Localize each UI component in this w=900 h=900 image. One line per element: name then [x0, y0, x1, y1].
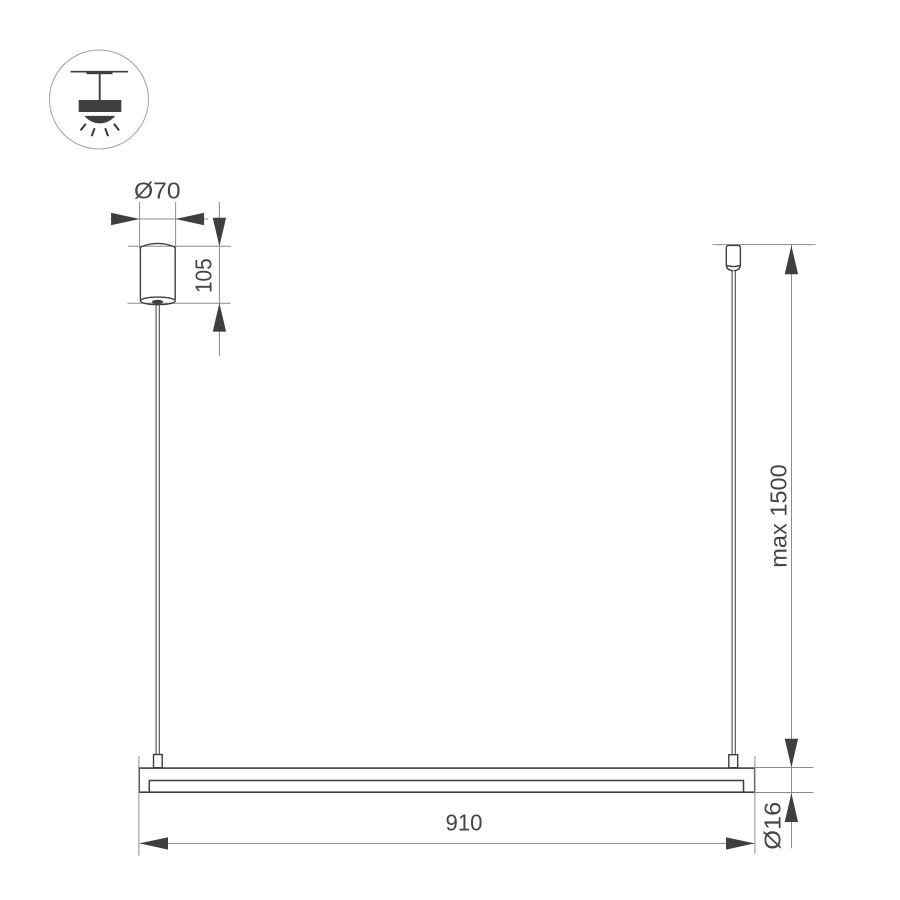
svg-text:910: 910	[446, 810, 483, 836]
svg-text:Ø70: Ø70	[134, 177, 181, 203]
svg-text:max 1500: max 1500	[765, 464, 791, 568]
svg-text:Ø16: Ø16	[759, 802, 785, 850]
svg-text:105: 105	[190, 258, 216, 293]
